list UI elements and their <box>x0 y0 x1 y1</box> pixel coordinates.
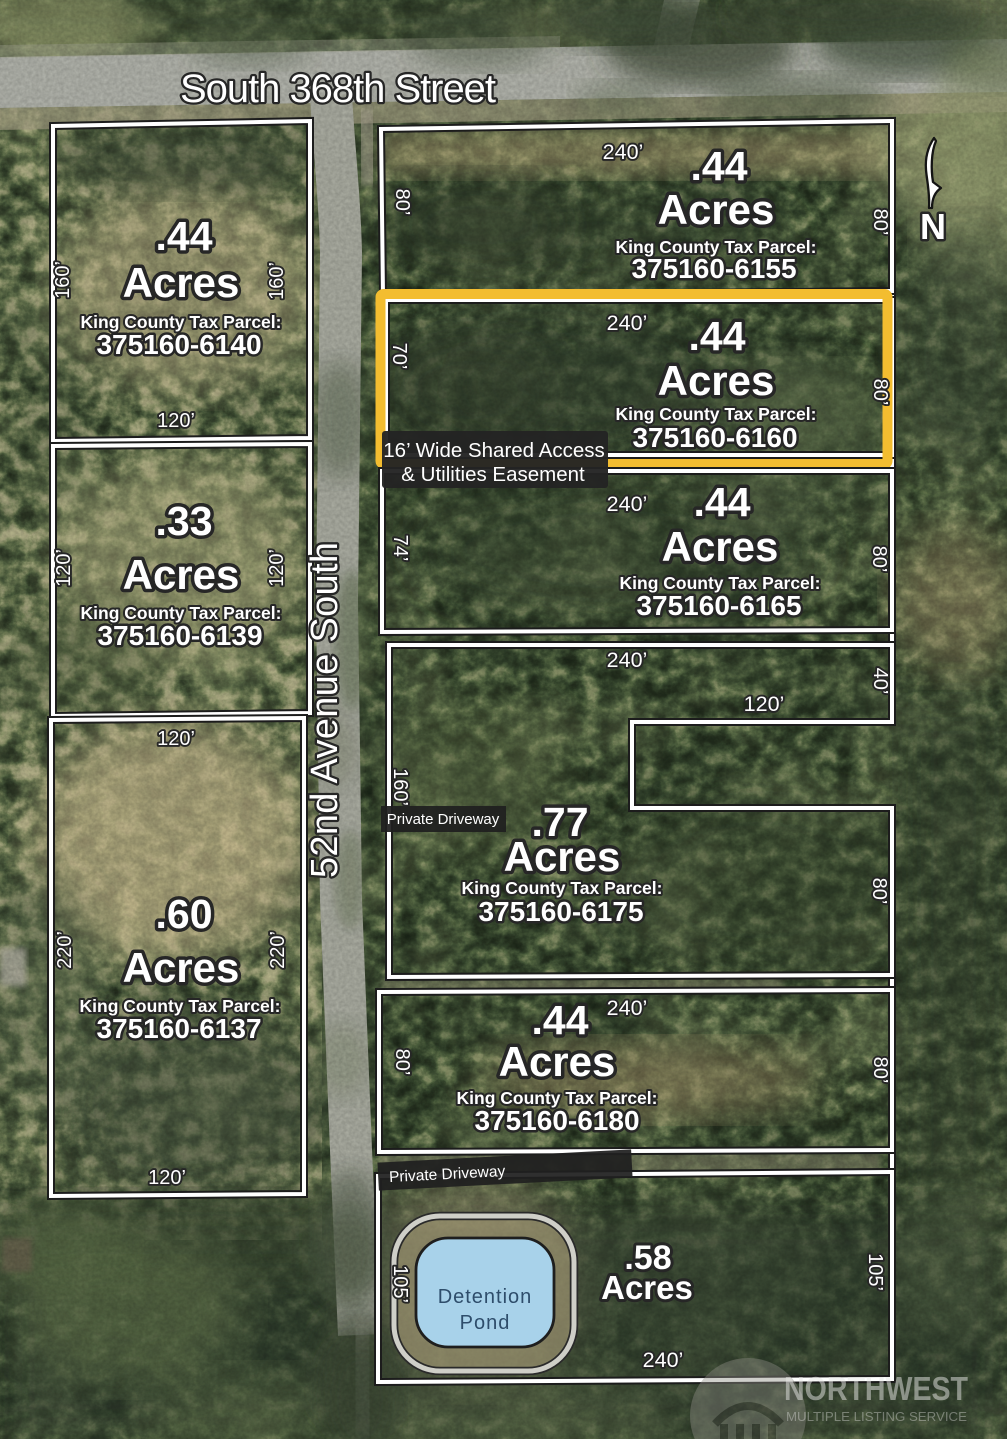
svg-text:Acres: Acres <box>504 833 621 880</box>
svg-text:220’: 220’ <box>54 931 76 969</box>
svg-text:240’: 240’ <box>643 1348 684 1372</box>
svg-text:40’: 40’ <box>869 668 891 695</box>
svg-text:Pond: Pond <box>460 1312 511 1334</box>
svg-text:.44: .44 <box>694 479 751 525</box>
svg-text:375160-6140: 375160-6140 <box>96 329 261 360</box>
svg-text:South 368th Street: South 368th Street <box>180 67 496 111</box>
svg-text:.33: .33 <box>156 498 213 544</box>
svg-text:& Utilities Easement: & Utilities Easement <box>401 463 585 486</box>
svg-text:Acres: Acres <box>123 259 240 306</box>
svg-text:N: N <box>920 206 946 247</box>
svg-text:74’: 74’ <box>389 535 411 562</box>
svg-text:.44: .44 <box>532 997 589 1043</box>
svg-text:Acres: Acres <box>123 944 240 991</box>
svg-text:80’: 80’ <box>391 1049 413 1076</box>
svg-text:Acres: Acres <box>499 1038 616 1085</box>
svg-text:Acres: Acres <box>658 186 775 233</box>
svg-text:240’: 240’ <box>607 648 648 672</box>
svg-text:80’: 80’ <box>869 1057 891 1084</box>
svg-text:120’: 120’ <box>157 728 195 750</box>
svg-text:240’: 240’ <box>607 996 648 1020</box>
svg-text:Acres: Acres <box>658 357 775 404</box>
svg-text:240’: 240’ <box>603 140 644 164</box>
svg-text:120’: 120’ <box>744 692 785 716</box>
svg-text:375160-6175: 375160-6175 <box>478 896 643 927</box>
svg-text:80’: 80’ <box>869 379 891 406</box>
svg-text:52nd Avenue South: 52nd Avenue South <box>304 542 346 878</box>
svg-text:120’: 120’ <box>157 410 195 432</box>
svg-text:375160-6160: 375160-6160 <box>632 422 797 453</box>
svg-text:King County Tax Parcel:: King County Tax Parcel: <box>616 404 817 424</box>
svg-text:King County Tax Parcel:: King County Tax Parcel: <box>462 878 663 898</box>
svg-text:160’: 160’ <box>389 768 411 806</box>
svg-text:160’: 160’ <box>52 261 74 299</box>
svg-text:240’: 240’ <box>607 492 648 516</box>
svg-text:Private Driveway: Private Driveway <box>387 811 500 828</box>
svg-text:Acres: Acres <box>123 551 240 598</box>
svg-text:.44: .44 <box>691 143 748 189</box>
svg-text:220’: 220’ <box>267 931 289 969</box>
svg-text:MULTIPLE LISTING SERVICE: MULTIPLE LISTING SERVICE <box>786 1409 967 1424</box>
svg-text:NORTHWEST: NORTHWEST <box>784 1370 968 1407</box>
svg-text:.44: .44 <box>156 213 213 259</box>
svg-text:375160-6155: 375160-6155 <box>631 253 796 284</box>
svg-text:375160-6165: 375160-6165 <box>636 590 801 621</box>
svg-text:120’: 120’ <box>53 549 75 587</box>
svg-text:120’: 120’ <box>266 549 288 587</box>
svg-text:105’: 105’ <box>389 1265 411 1303</box>
svg-text:70’: 70’ <box>388 343 410 370</box>
svg-text:375160-6180: 375160-6180 <box>474 1105 639 1136</box>
svg-text:160’: 160’ <box>266 262 288 300</box>
svg-text:.60: .60 <box>156 891 213 937</box>
svg-text:80’: 80’ <box>391 189 413 216</box>
svg-text:80’: 80’ <box>868 878 890 905</box>
svg-text:80’: 80’ <box>868 546 890 573</box>
svg-text:Acres: Acres <box>662 523 779 570</box>
svg-text:80’: 80’ <box>869 209 891 236</box>
svg-text:105’: 105’ <box>864 1253 886 1291</box>
svg-text:16’ Wide Shared Access: 16’ Wide Shared Access <box>383 439 604 462</box>
svg-text:375160-6139: 375160-6139 <box>97 620 262 651</box>
svg-text:375160-6137: 375160-6137 <box>96 1013 261 1044</box>
svg-text:.44: .44 <box>689 313 746 359</box>
svg-text:Detention: Detention <box>438 1286 533 1308</box>
svg-text:Acres: Acres <box>601 1269 693 1306</box>
svg-text:240’: 240’ <box>607 311 648 335</box>
svg-text:120’: 120’ <box>148 1167 186 1189</box>
